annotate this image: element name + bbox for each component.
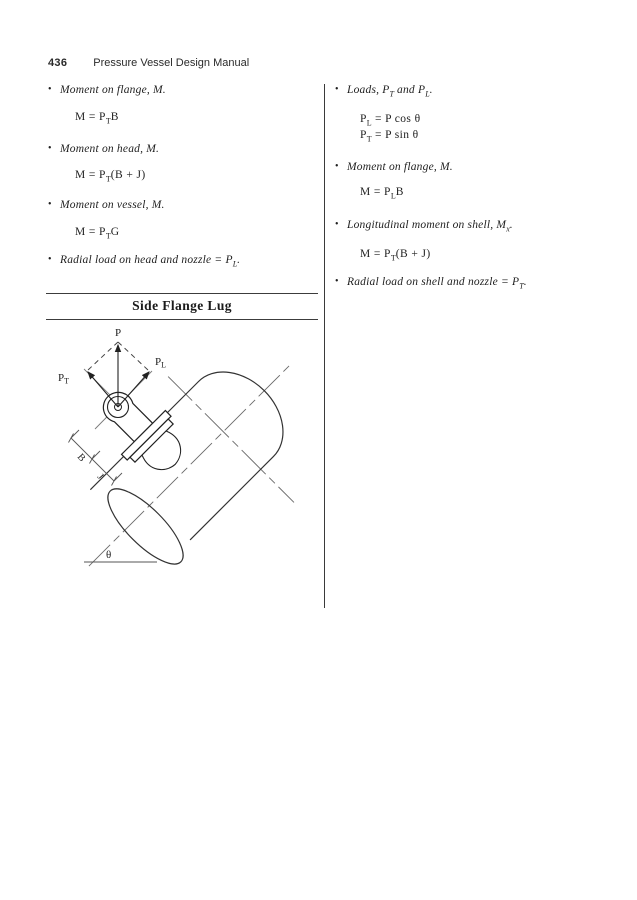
equation-moment-flange-left: M = PTB	[75, 111, 119, 125]
bullet-icon: •	[335, 219, 347, 230]
figure-title-block: Side Flange Lug	[46, 293, 318, 320]
equation-pl: PL = P cos θ	[360, 113, 420, 127]
equation-moment-flange-right: M = PLB	[360, 186, 404, 200]
book-page: 436Pressure Vessel Design Manual •Moment…	[0, 0, 637, 900]
shell-open-end-ellipse	[97, 478, 193, 574]
bullet-radial-load-shell: •Radial load on shell and nozzle = PT.	[335, 276, 527, 290]
extension-line-3	[114, 473, 122, 481]
bullet-text: Moment on head, M.	[60, 143, 159, 155]
figure-title: Side Flange Lug	[132, 298, 232, 313]
bullet-icon: •	[335, 161, 347, 172]
bullet-icon: •	[48, 143, 60, 154]
vessel-cross-centerline	[168, 377, 294, 503]
bullet-longitudinal-moment: •Longitudinal moment on shell, Mx.	[335, 219, 513, 233]
side-flange-lug-diagram: P PT PL B J θ	[50, 325, 312, 593]
column-divider-rule	[324, 84, 325, 608]
bullet-icon: •	[48, 199, 60, 210]
bullet-moment-on-head: •Moment on head, M.	[48, 143, 159, 155]
bullet-loads: •Loads, PT and PL.	[335, 84, 433, 98]
bullet-text: Longitudinal moment on shell, Mx.	[347, 219, 513, 231]
bullet-radial-load-head: •Radial load on head and nozzle = PL.	[48, 254, 240, 268]
extension-line-1	[71, 430, 79, 438]
bullet-text: Radial load on shell and nozzle = PT.	[347, 276, 527, 288]
bullet-text: Moment on vessel, M.	[60, 199, 165, 211]
vessel-shell	[50, 325, 312, 593]
parallelogram-dash-right	[118, 342, 148, 370]
label-theta: θ	[106, 549, 111, 561]
equation-moment-vessel: M = PTG	[75, 226, 119, 240]
bullet-text: Loads, PT and PL.	[347, 84, 433, 96]
label-b: B	[75, 452, 88, 465]
bullet-moment-on-vessel: •Moment on vessel, M.	[48, 199, 165, 211]
parallelogram-dash-left	[88, 342, 118, 370]
page-number: 436	[48, 57, 67, 69]
force-arrow-pt	[88, 372, 118, 407]
equation-longitudinal-moment: M = PT(B + J)	[360, 248, 431, 262]
bullet-icon: •	[48, 254, 60, 265]
equation-pt: PT = P sin θ	[360, 129, 419, 143]
force-arrow-pl	[118, 372, 149, 407]
bullet-moment-on-flange-right: •Moment on flange, M.	[335, 161, 453, 173]
equation-moment-head: M = PT(B + J)	[75, 169, 146, 183]
label-pl: PL	[155, 356, 166, 370]
extension-line-2	[92, 451, 100, 459]
label-p: P	[115, 327, 121, 339]
bullet-text: Radial load on head and nozzle = PL.	[60, 254, 240, 266]
bullet-icon: •	[335, 276, 347, 287]
book-title: Pressure Vessel Design Manual	[93, 57, 249, 69]
bullet-text: Moment on flange, M.	[347, 161, 453, 173]
bullet-moment-on-flange-left: •Moment on flange, M.	[48, 84, 166, 96]
label-pt: PT	[58, 372, 69, 386]
page-header: 436Pressure Vessel Design Manual	[48, 57, 249, 69]
bullet-icon: •	[335, 84, 347, 95]
bullet-icon: •	[48, 84, 60, 95]
bullet-text: Moment on flange, M.	[60, 84, 166, 96]
